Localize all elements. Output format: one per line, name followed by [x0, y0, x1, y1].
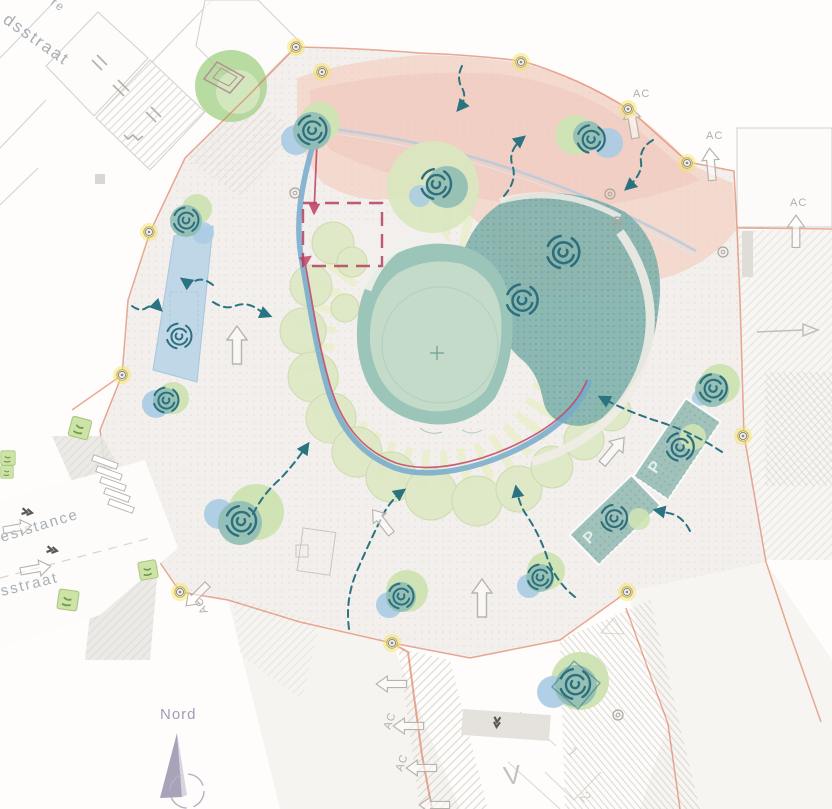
tree-canopy-light — [216, 70, 260, 114]
wall-segment — [742, 231, 753, 277]
bush-planter-icon — [1, 466, 14, 479]
yellow-node-marker-icon — [512, 53, 530, 71]
compass-label: Nord — [160, 706, 197, 723]
street-furniture — [95, 174, 105, 184]
tree-canopy-teal — [386, 582, 416, 612]
yellow-node-marker-icon — [734, 427, 752, 445]
yellow-node-marker-icon — [383, 634, 401, 652]
yellow-node-marker-icon — [678, 154, 696, 172]
yellow-node-marker-icon — [618, 583, 636, 601]
tree-canopy — [628, 508, 650, 530]
yellow-node-marker-icon — [171, 583, 189, 601]
access-label: AC — [706, 130, 723, 142]
plan-canvas: P P esistance sstraat re dsstraat — [0, 0, 832, 809]
tree-canopy — [452, 476, 502, 526]
tree-canopy — [331, 294, 359, 322]
bush-planter-icon — [68, 416, 92, 440]
building-hatch — [765, 372, 832, 486]
tree-canopy — [405, 468, 457, 520]
building-block — [737, 128, 832, 227]
access-label: AC — [633, 88, 650, 100]
yellow-node-marker-icon — [140, 223, 158, 241]
access-label: AC — [790, 197, 807, 209]
yellow-node-marker-icon — [619, 100, 637, 118]
spiral-tree — [387, 141, 479, 233]
bright-tree-with-pavilion — [195, 50, 267, 122]
tree-canopy — [337, 247, 367, 277]
tree-canopy-teal — [170, 205, 202, 237]
bush-planter-icon — [57, 589, 79, 611]
yellow-node-marker-icon — [113, 366, 131, 384]
bush-planter-icon — [138, 560, 159, 581]
yellow-node-marker-icon — [313, 63, 331, 81]
yellow-node-marker-icon — [287, 38, 305, 56]
pond-inner — [370, 261, 502, 411]
site-plan-map: P P esistance sstraat re dsstraat — [0, 0, 832, 809]
bush-planter-icon — [1, 451, 15, 465]
